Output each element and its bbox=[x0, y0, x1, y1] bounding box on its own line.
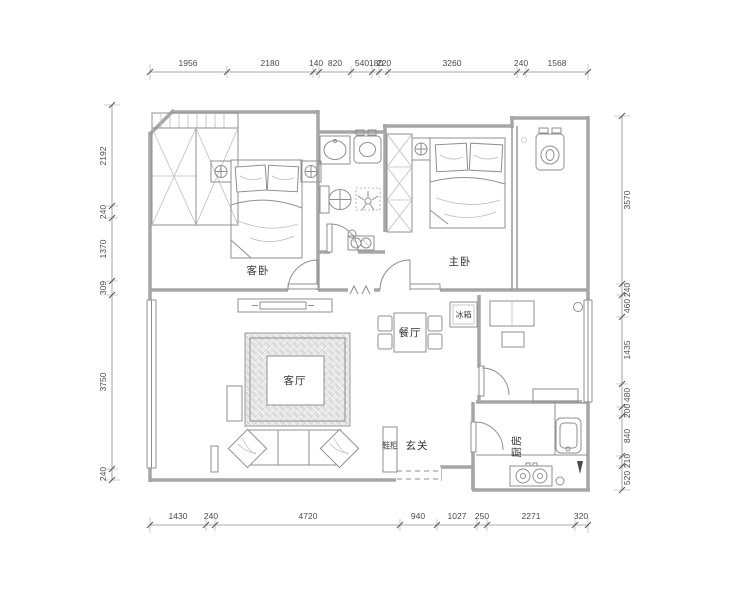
dim-label: 820 bbox=[328, 58, 342, 68]
dim-label: 460 bbox=[622, 299, 632, 313]
room-label-dining: 餐厅 bbox=[399, 326, 422, 339]
room-label-kitchen: 厨房 bbox=[510, 435, 523, 458]
floor-plan-page: 客卧 bbox=[0, 0, 740, 600]
dim-label: 240 bbox=[98, 205, 108, 219]
guest-nightstand-left bbox=[211, 161, 231, 182]
master-nightstand bbox=[412, 138, 430, 160]
dim-label: 520 bbox=[622, 471, 632, 485]
tv-stand bbox=[238, 299, 332, 312]
wall-break-marks bbox=[350, 286, 370, 294]
dim-label: 240 bbox=[622, 283, 632, 297]
dim-label: 4720 bbox=[299, 511, 318, 521]
dim-label: 1027 bbox=[448, 511, 467, 521]
dim-label: 1956 bbox=[179, 58, 198, 68]
dim-label: 250 bbox=[475, 511, 489, 521]
floor-plan-canvas: 客卧 bbox=[0, 0, 740, 600]
windows bbox=[145, 300, 594, 468]
dim-label: 540 bbox=[355, 58, 369, 68]
room-label-living: 客厅 bbox=[284, 374, 307, 387]
master-wardrobe bbox=[387, 134, 412, 232]
dim-label: 1435 bbox=[622, 340, 632, 359]
dim-label: 220 bbox=[377, 58, 391, 68]
room-label-guest-bedroom: 客卧 bbox=[247, 264, 270, 277]
side-table bbox=[211, 386, 242, 472]
kitchen-door bbox=[471, 422, 503, 452]
bathroom-basin bbox=[354, 130, 381, 163]
dim-label: 140 bbox=[309, 58, 323, 68]
dim-label: 2192 bbox=[98, 146, 108, 165]
dimension-left: 2192 240 1370 309 3750 240 bbox=[98, 102, 120, 483]
fixture-label-fridge: 冰箱 bbox=[456, 310, 472, 320]
dim-label: 840 bbox=[622, 429, 632, 443]
master-bed bbox=[430, 138, 505, 228]
dim-label: 3570 bbox=[622, 190, 632, 209]
master-bedroom-door bbox=[380, 260, 440, 290]
shower-head bbox=[356, 188, 380, 210]
dim-label: 2271 bbox=[522, 511, 541, 521]
guest-bed bbox=[231, 160, 302, 258]
dimension-right: 3570 240 460 1435 480 200 840 210 520 bbox=[614, 113, 632, 493]
floor-drain bbox=[348, 230, 356, 238]
dim-label: 240 bbox=[514, 58, 528, 68]
washing-machine bbox=[522, 128, 565, 170]
dim-label: 1430 bbox=[169, 511, 188, 521]
kitchen-label: 厨房 bbox=[510, 435, 523, 458]
room-label-foyer: 玄关 bbox=[406, 439, 429, 452]
dimension-bottom: 1430 240 4720 940 1027 250 2271 320 bbox=[147, 511, 591, 533]
dim-label: 480 bbox=[622, 388, 632, 402]
fixture-label-shoe-cabinet: 鞋柜 bbox=[382, 440, 398, 450]
entry-opening bbox=[396, 467, 441, 484]
room-label-master-bedroom: 主卧 bbox=[449, 255, 472, 268]
kitchen-stove bbox=[510, 461, 583, 486]
dim-label: 3260 bbox=[443, 58, 462, 68]
study-furniture bbox=[490, 301, 583, 402]
dim-label: 3750 bbox=[98, 372, 108, 391]
dim-label: 320 bbox=[574, 511, 588, 521]
dim-label: 200 bbox=[622, 404, 632, 418]
dim-label: 240 bbox=[98, 467, 108, 481]
toilet bbox=[320, 186, 351, 213]
dim-label: 210 bbox=[622, 454, 632, 468]
outer-walls bbox=[150, 110, 590, 490]
study-door bbox=[479, 366, 509, 396]
dim-label: 1370 bbox=[98, 239, 108, 258]
dimension-top: 1956 2180 140 820 540 180 220 3260 240 1… bbox=[147, 58, 591, 80]
sofa bbox=[228, 429, 358, 467]
kitchen-sink bbox=[556, 418, 581, 453]
guest-bedroom-door bbox=[288, 260, 318, 290]
dim-label: 240 bbox=[204, 511, 218, 521]
bathroom-sink bbox=[320, 136, 350, 164]
guest-wardrobe bbox=[152, 113, 238, 225]
dim-label: 309 bbox=[98, 281, 108, 295]
dim-label: 940 bbox=[411, 511, 425, 521]
dim-label: 1568 bbox=[548, 58, 567, 68]
dim-label: 2180 bbox=[261, 58, 280, 68]
